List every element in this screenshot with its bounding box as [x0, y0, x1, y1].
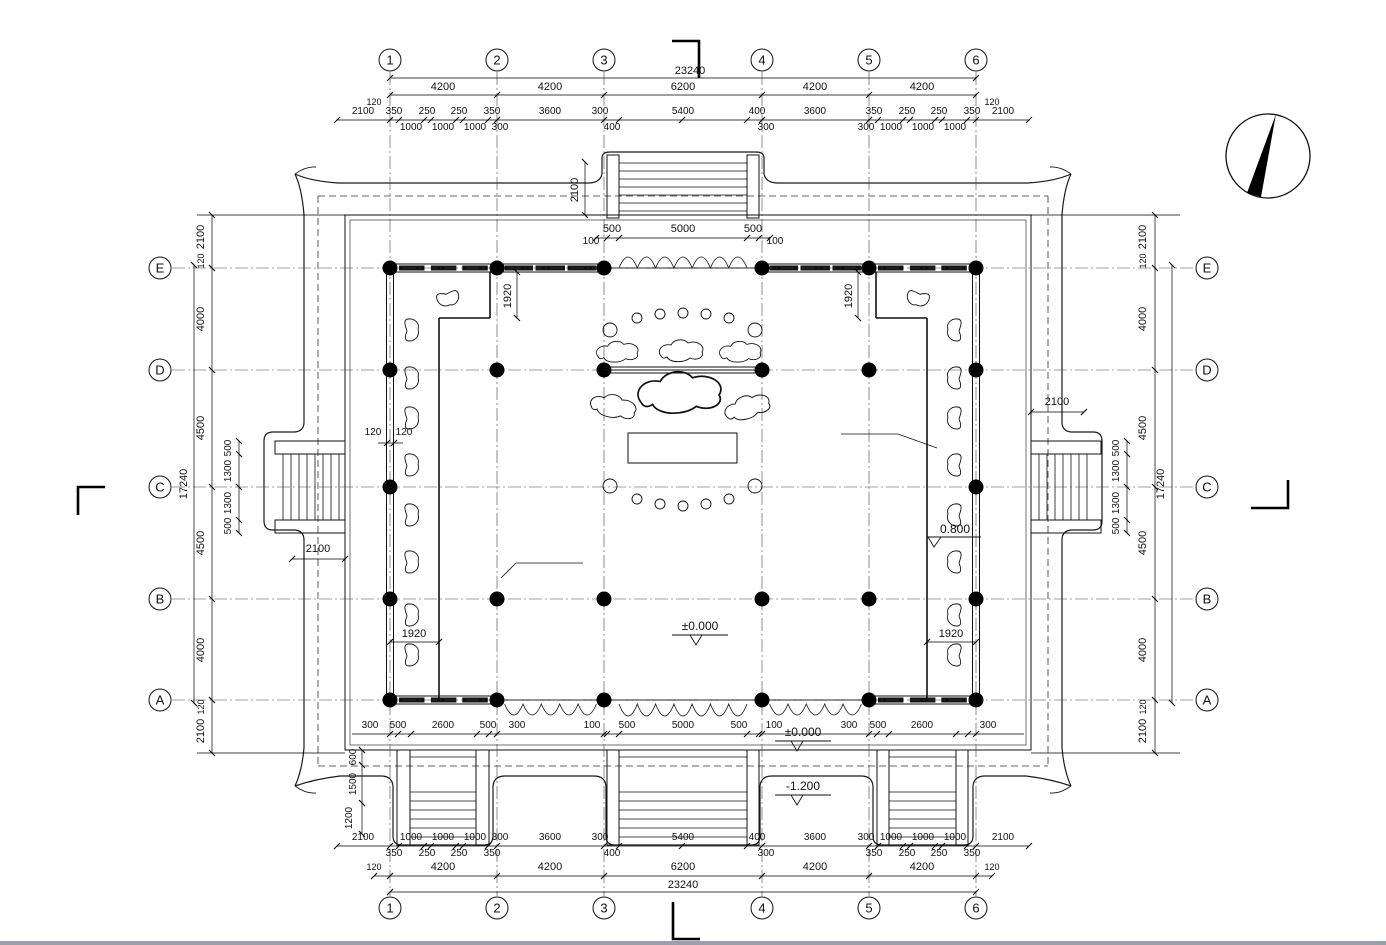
dim-label: 500	[1111, 517, 1122, 534]
dim-label: 2100	[306, 543, 330, 555]
dim-label: 1000	[464, 832, 487, 843]
dim-label: 250	[419, 848, 436, 859]
column-dot	[597, 592, 612, 607]
dim-label: 17240	[1155, 469, 1167, 500]
column-dot	[383, 480, 398, 495]
dim-label: 500	[870, 720, 887, 731]
platform-outline	[345, 215, 1031, 750]
dim-label: 2100	[992, 832, 1015, 843]
grid-bubble-label: 4	[758, 53, 765, 68]
grid-bubble-label: 3	[600, 53, 607, 68]
section-cut-icon	[78, 487, 105, 515]
dim-label: 4200	[910, 861, 934, 873]
column-dot	[755, 693, 770, 708]
dim-label: 250	[451, 848, 468, 859]
window-edge-bar	[0, 941, 1386, 945]
dim-label: 2100	[352, 106, 375, 117]
grid-bubble-label: A	[1203, 693, 1212, 708]
dim-label: 3600	[804, 832, 827, 843]
dim-label: 250	[451, 106, 468, 117]
dim-label: 350	[386, 106, 403, 117]
dim-label: 300	[758, 122, 775, 133]
column-dot	[490, 693, 505, 708]
dim-label: 2100	[569, 178, 581, 202]
dim-label: 1920	[502, 284, 514, 308]
dim-label: 2100	[352, 832, 375, 843]
dim-label: 300	[858, 122, 875, 133]
north-arrow	[1226, 114, 1310, 198]
level-markers	[672, 537, 981, 805]
dim-label: 250	[931, 848, 948, 859]
dim-label: 2600	[911, 720, 934, 731]
grid-bubble-label: 6	[972, 901, 979, 916]
dim-label: 120	[1138, 699, 1148, 714]
dim-label: 4000	[195, 307, 207, 331]
dim-label: 250	[419, 106, 436, 117]
dim-label: 4000	[195, 638, 207, 662]
dim-label: 1000	[400, 122, 423, 133]
column-dot	[862, 363, 877, 378]
dim-label: ±0.000	[785, 725, 822, 739]
dim-label: 4200	[803, 861, 827, 873]
dim-label: 350	[484, 106, 501, 117]
dim-label: 4000	[1137, 638, 1149, 662]
dim-label: 400	[604, 122, 621, 133]
column-dot	[383, 261, 398, 276]
column-dot	[383, 693, 398, 708]
dim-label: 1000	[432, 832, 455, 843]
dim-label: 300	[858, 832, 875, 843]
dim-label: 350	[866, 848, 883, 859]
dim-label: 4200	[538, 861, 562, 873]
dim-label: 350	[866, 106, 883, 117]
dim-label: 5000	[672, 720, 695, 731]
dim-label: 500	[619, 720, 636, 731]
dim-label: 6200	[671, 81, 695, 93]
dim-label: 4200	[910, 81, 934, 93]
grid-bubble-label: E	[1203, 261, 1212, 276]
dim-label: 2100	[992, 106, 1015, 117]
dim-label: 1000	[432, 122, 455, 133]
dim-label: 120	[365, 427, 382, 438]
column-dot	[969, 480, 984, 495]
grid-bubble-label: 3	[600, 901, 607, 916]
grid-bubble-label: 1	[386, 901, 393, 916]
dim-label: 1300	[223, 459, 234, 482]
dim-label: 1500	[348, 772, 359, 795]
stair-north	[607, 155, 759, 218]
section-cut-icon	[1251, 480, 1288, 508]
column-dot	[969, 363, 984, 378]
dim-label: 4200	[803, 81, 827, 93]
dim-label: 2100	[1137, 225, 1149, 249]
level-mark-p08	[928, 537, 981, 547]
dim-label: 1920	[939, 628, 963, 640]
section-cut-icon	[673, 902, 700, 939]
dim-label: 1300	[223, 491, 234, 514]
dim-label: -1.200	[786, 779, 820, 793]
dim-label: 400	[749, 832, 766, 843]
dim-label: 500	[603, 223, 621, 235]
dim-label: 500	[223, 439, 234, 456]
dim-label: 1000	[912, 832, 935, 843]
dim-label: 300	[592, 832, 609, 843]
dim-label: 1300	[1111, 459, 1122, 482]
dim-label: 4200	[538, 81, 562, 93]
dim-label: 120	[1138, 253, 1148, 268]
dim-label: 300	[492, 832, 509, 843]
column-dot	[755, 592, 770, 607]
grid-bubble-label: C	[1202, 480, 1211, 495]
dim-label: 3600	[539, 832, 562, 843]
column-dot	[969, 592, 984, 607]
dim-label: 350	[484, 848, 501, 859]
grid-bubble-label: D	[155, 363, 164, 378]
dim-label: ±0.000	[682, 619, 719, 633]
dim-label: 250	[899, 848, 916, 859]
dim-label: 1000	[464, 122, 487, 133]
dim-label: 1300	[1111, 491, 1122, 514]
column-dot	[383, 592, 398, 607]
dim-label: 3600	[539, 106, 562, 117]
dim-label: 100	[584, 720, 601, 731]
dim-label: 5000	[671, 223, 695, 235]
level-mark-minus	[775, 795, 831, 805]
exterior-walls	[387, 257, 980, 716]
grid-bubbles: 112233445566EEDDCCBBAA	[149, 49, 1218, 919]
dim-label: 4200	[431, 81, 455, 93]
column-dot	[969, 261, 984, 276]
inner-walls	[439, 272, 927, 698]
dim-label: 500	[731, 720, 748, 731]
dim-label: 1000	[880, 832, 903, 843]
dim-label: 100	[766, 720, 783, 731]
dim-label: 5400	[672, 832, 695, 843]
section-cut-marks	[78, 41, 1288, 939]
dim-label: 120	[366, 862, 381, 872]
dim-label: 2100	[1137, 719, 1149, 743]
dim-label: 4000	[1137, 307, 1149, 331]
dim-label: 1000	[944, 832, 967, 843]
dim-label: 100	[583, 236, 600, 247]
dim-label: 350	[964, 106, 981, 117]
dim-label: 500	[480, 720, 497, 731]
stair-south-left	[397, 750, 489, 845]
dim-label: 400	[604, 848, 621, 859]
column-dot	[383, 363, 398, 378]
floor-plan-drawing: 112233445566EEDDCCBBAA 23240420042006200…	[0, 0, 1386, 945]
grid-bubble-label: D	[1202, 363, 1211, 378]
column-dot	[755, 261, 770, 276]
dim-label: 400	[749, 106, 766, 117]
column-dot	[862, 693, 877, 708]
altar-platform	[628, 433, 737, 463]
grid-bubble-label: 5	[865, 53, 872, 68]
stair-south-right	[877, 750, 968, 845]
grid-bubble-label: 2	[493, 901, 500, 916]
dim-label: 2600	[432, 720, 455, 731]
dim-label: 350	[964, 848, 981, 859]
eave-dashed-line	[318, 196, 1048, 766]
cad-canvas: 112233445566EEDDCCBBAA 23240420042006200…	[0, 0, 1386, 945]
dim-label: 500	[390, 720, 407, 731]
dim-label: 23240	[668, 879, 699, 891]
dim-label: 300	[758, 848, 775, 859]
dim-label: 23240	[675, 65, 706, 77]
dim-label: 4500	[195, 416, 207, 440]
dim-label: 600	[348, 748, 359, 765]
dim-label: 120	[196, 699, 206, 714]
dim-label: 120	[196, 253, 206, 268]
grid-bubble-label: E	[156, 261, 165, 276]
dim-label: 1920	[843, 284, 855, 308]
dim-label: 300	[841, 720, 858, 731]
column-dot	[969, 693, 984, 708]
dim-label: 4500	[1137, 416, 1149, 440]
grid-bubble-label: B	[156, 592, 165, 607]
dim-label: 1000	[880, 122, 903, 133]
dim-label: 500	[223, 517, 234, 534]
dim-label: 1920	[402, 628, 426, 640]
grid-bubble-label: 5	[865, 901, 872, 916]
dim-label: 1000	[944, 122, 967, 133]
stair-south-center	[607, 750, 759, 845]
stairs	[275, 155, 1101, 845]
column-dot	[490, 592, 505, 607]
dim-label: 17240	[178, 469, 190, 500]
dim-label: 500	[744, 223, 762, 235]
dimension-labels: 2324042004200620042004200120120210035025…	[178, 65, 1167, 891]
dim-label: 250	[899, 106, 916, 117]
dim-label: 250	[931, 106, 948, 117]
window-band	[399, 266, 967, 703]
dim-label: 5400	[672, 106, 695, 117]
dim-label: 0.800	[940, 522, 970, 536]
dim-label: 6200	[671, 861, 695, 873]
dim-label: 2100	[1045, 396, 1069, 408]
dim-label: 300	[509, 720, 526, 731]
grid-bubble-label: 2	[493, 53, 500, 68]
dim-label: 1000	[400, 832, 423, 843]
dim-label: 120	[396, 427, 413, 438]
dim-label: 300	[980, 720, 997, 731]
dim-label: 1000	[912, 122, 935, 133]
circle-ornament-arcs	[603, 308, 762, 511]
grid-bubble-label: B	[1203, 592, 1212, 607]
dim-label: 4500	[195, 531, 207, 555]
column-dot	[597, 261, 612, 276]
column-dot	[862, 261, 877, 276]
dim-label: 350	[386, 848, 403, 859]
dim-label: 300	[492, 122, 509, 133]
dim-label: 2100	[195, 719, 207, 743]
level-mark-floor	[672, 635, 728, 645]
dim-label: 3600	[804, 106, 827, 117]
grid-bubble-label: 6	[972, 53, 979, 68]
dim-label: 4500	[1137, 531, 1149, 555]
dim-label: 2100	[195, 225, 207, 249]
dim-label: 300	[592, 106, 609, 117]
grid-bubble-label: 1	[386, 53, 393, 68]
dim-label: 120	[984, 862, 999, 872]
dim-label: 100	[767, 236, 784, 247]
compass-needle-icon	[1247, 114, 1276, 197]
dim-label: 500	[1111, 439, 1122, 456]
column-dot	[862, 592, 877, 607]
column-dot	[490, 363, 505, 378]
dim-label: 300	[362, 720, 379, 731]
grid-bubble-label: 4	[758, 901, 765, 916]
cloud-motifs	[405, 290, 961, 666]
dim-label: 4200	[431, 861, 455, 873]
grid-bubble-label: A	[156, 693, 165, 708]
grid-bubble-label: C	[155, 480, 164, 495]
column-dot	[597, 693, 612, 708]
scallop-arches	[505, 257, 862, 716]
dim-label: 1200	[344, 806, 355, 829]
leader-lines	[501, 434, 937, 578]
column-dot	[490, 261, 505, 276]
